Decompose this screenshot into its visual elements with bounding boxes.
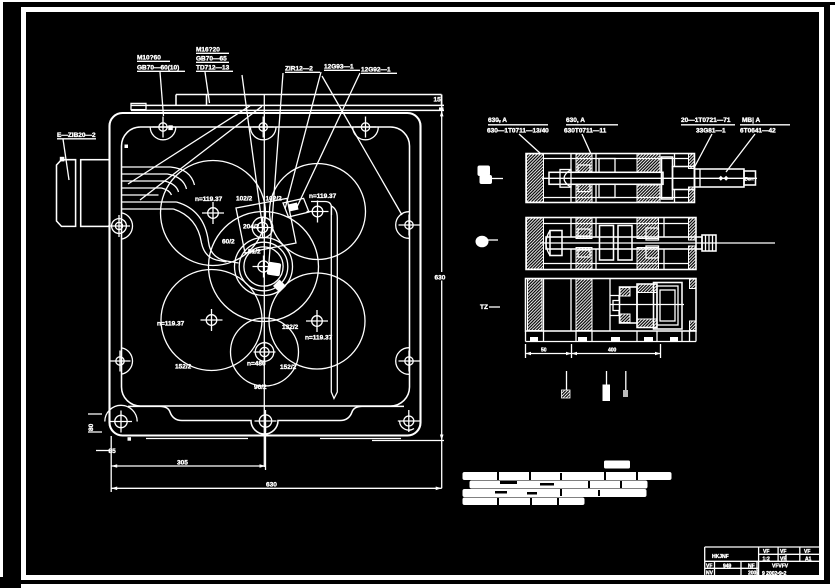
svg-text:630̶, A: 630̶, A [488,117,507,124]
svg-text:VFVFV: VFVFV [772,563,789,569]
svg-text:TD712—13: TD712—13 [196,65,230,72]
svg-text:VF: VF [804,549,810,555]
svg-text:ZIR12—2: ZIR12—2 [285,66,313,73]
svg-text:400: 400 [608,348,617,354]
svg-text:A1: A1 [805,557,812,563]
svg-text:VF: VF [706,563,712,569]
svg-text:n=119.37: n=119.37 [305,335,333,342]
svg-text:n=480: n=480 [247,361,266,368]
svg-text:50: 50 [541,348,547,354]
svg-text:204/2: 204/2 [243,224,260,231]
svg-text:n=119.37: n=119.37 [157,321,185,328]
svg-text:80: 80 [88,423,95,431]
svg-text:85: 85 [109,448,117,455]
svg-text:33G81—1: 33G81—1 [696,128,726,135]
svg-text:15: 15 [434,97,442,104]
svg-text:12G93—1: 12G93—1 [324,64,354,71]
svg-text:630T0711—11: 630T0711—11 [564,128,607,135]
svg-text:VF: VF [780,557,786,563]
svg-text:GB70—60(10): GB70—60(10) [137,65,179,72]
svg-text:NF: NF [748,563,755,569]
svg-text:VF: VF [763,549,769,555]
svg-text:VF: VF [780,549,786,555]
svg-text:1:2: 1:2 [763,557,770,563]
svg-text:132/2: 132/2 [282,324,299,331]
svg-text:630, A: 630, A [566,117,585,124]
svg-text:GB70—65: GB70—65 [196,56,227,63]
svg-text:n=119.37: n=119.37 [195,196,223,203]
svg-text:TZ: TZ [480,304,488,311]
svg-text:630: 630 [266,482,277,489]
svg-text:60/2: 60/2 [222,239,235,246]
svg-text:305: 305 [177,460,188,467]
svg-text:6T0641—42: 6T0641—42 [740,128,776,135]
svg-text:630—1T0711—13/40: 630—1T0711—13/40 [487,128,549,135]
svg-text:12G92—1: 12G92—1 [361,67,391,74]
svg-text:∅8H: ∅8H [744,177,754,182]
svg-text:102/2: 102/2 [236,196,253,203]
svg-text:E—ZIB20—2: E—ZIB20—2 [57,132,96,139]
svg-text:949: 949 [723,563,732,569]
svg-text:n=119.37: n=119.37 [309,193,337,200]
svg-text:HKJNF: HKJNF [712,554,729,560]
svg-text:2002: 2002 [748,570,759,576]
svg-text:630: 630 [435,275,446,282]
svg-text:152/2: 152/2 [280,364,297,371]
svg-text:102/2: 102/2 [266,196,283,203]
svg-text:152/2: 152/2 [175,364,192,371]
svg-text:96/2: 96/2 [254,384,267,391]
svg-text:NV: NV [706,570,714,576]
svg-text:9 2002•9•2: 9 2002•9•2 [762,571,787,577]
svg-text:M10?60: M10?60 [137,55,161,62]
svg-text:MB| A: MB| A [742,117,760,124]
svg-text:20—1T0721—71: 20—1T0721—71 [681,117,731,124]
svg-text:51/2: 51/2 [248,249,261,256]
svg-text:M16?20: M16?20 [196,47,220,54]
